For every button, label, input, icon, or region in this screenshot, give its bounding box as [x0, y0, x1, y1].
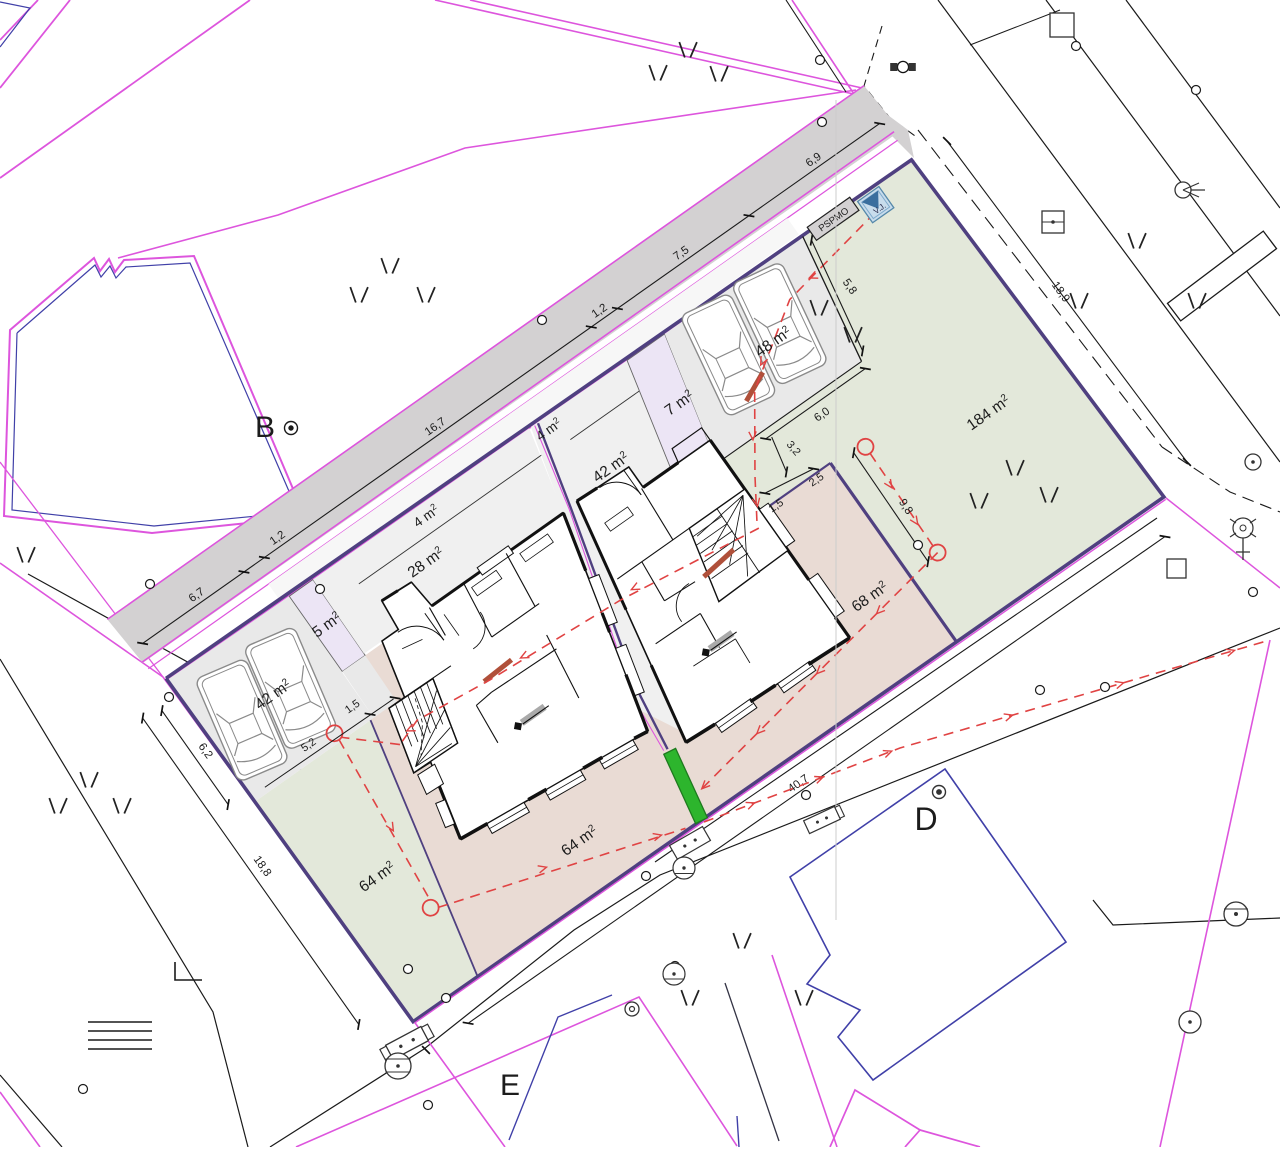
svg-text:B: B — [255, 411, 275, 444]
svg-text:E: E — [500, 1069, 520, 1102]
svg-text:D: D — [914, 801, 937, 837]
